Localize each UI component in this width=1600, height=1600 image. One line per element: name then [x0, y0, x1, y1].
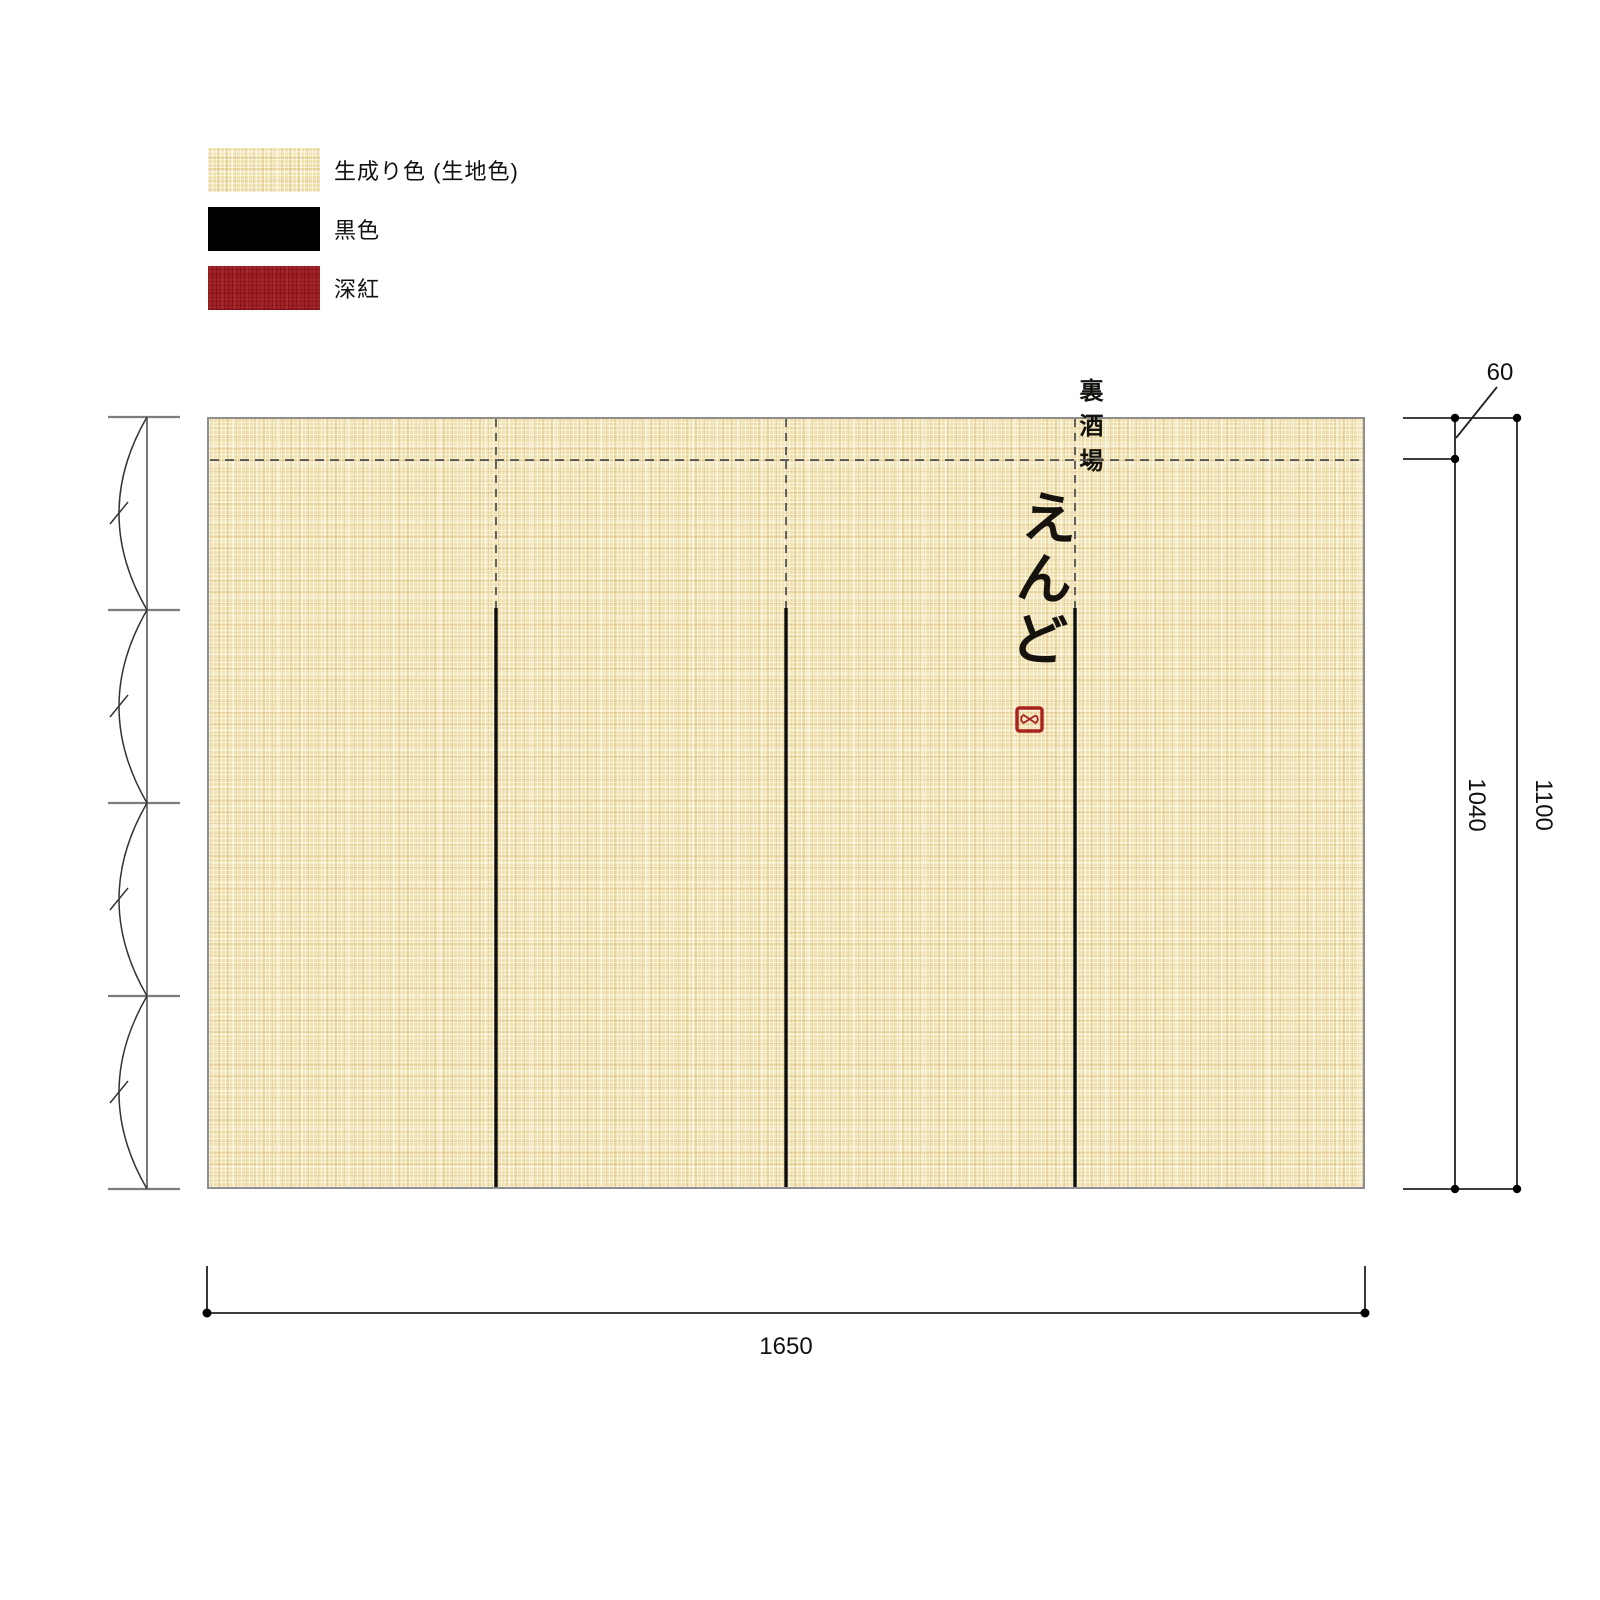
fabric-color-swatch — [208, 148, 320, 192]
fabric-color-label: 生成り色 (生地色) — [334, 154, 519, 186]
dimension-pocket-height: 60 — [1487, 359, 1514, 387]
bottom-dimension-dots — [203, 1309, 1370, 1318]
crimson-color-swatch — [208, 266, 320, 310]
seal-stamp-icon — [1015, 706, 1044, 733]
dimension-total-width: 1650 — [759, 1333, 812, 1361]
legend-row-black: 黒色 — [208, 207, 519, 251]
bottom-dimension-line — [207, 1266, 1365, 1313]
black-color-label: 黒色 — [334, 213, 380, 245]
shop-type-vertical-text: 裏酒場 — [1076, 378, 1100, 483]
legend-row-fabric-color: 生成り色 (生地色) — [208, 148, 519, 192]
dimension-total-height: 1100 — [1529, 779, 1557, 831]
right-dimension-lines — [1403, 387, 1517, 1189]
color-legend: 生成り色 (生地色) 黒色 深紅 — [208, 148, 519, 310]
crimson-color-label: 深紅 — [334, 272, 380, 304]
spec-sheet-page: 生成り色 (生地色) 黒色 深紅 裏酒場 えんど — [0, 0, 1600, 1600]
noren-fabric-panel — [207, 417, 1365, 1189]
dimension-print-height: 1040 — [1462, 778, 1490, 831]
shop-name-calligraphy: えんど — [1004, 486, 1076, 673]
legend-row-crimson: 深紅 — [208, 266, 519, 310]
black-color-swatch — [208, 207, 320, 251]
left-drape-bracket — [108, 417, 180, 1189]
